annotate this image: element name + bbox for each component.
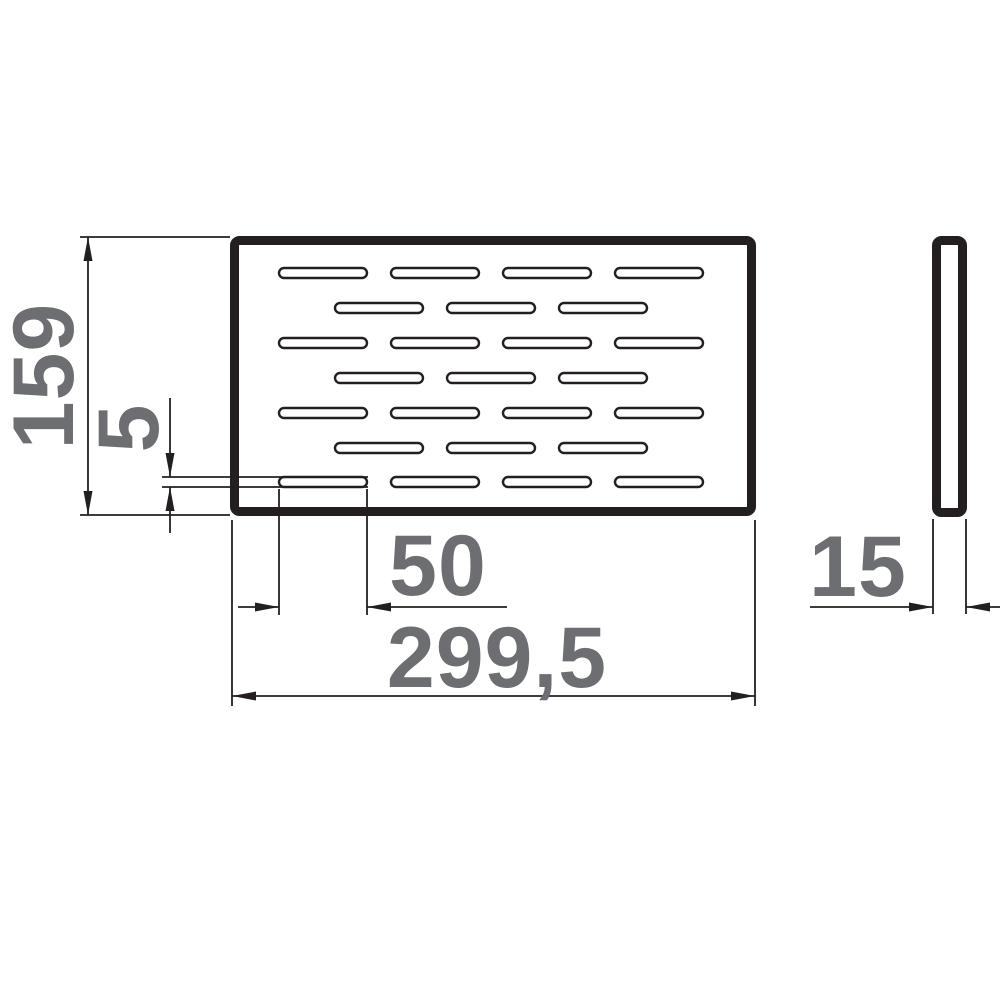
arrow-up-icon bbox=[166, 487, 175, 511]
vent-slot bbox=[447, 443, 535, 453]
dim-label-slot-length: 50 bbox=[389, 523, 487, 609]
technical-drawing: 159 5 50 299,5 15 bbox=[0, 0, 1000, 1000]
vent-slot bbox=[559, 303, 647, 313]
vent-slot bbox=[391, 477, 479, 487]
arrow-left-icon bbox=[966, 603, 990, 612]
dim-159-lines bbox=[80, 237, 230, 515]
vent-slot bbox=[335, 373, 423, 383]
vent-slot bbox=[559, 373, 647, 383]
vent-slot bbox=[447, 303, 535, 313]
vent-slot bbox=[391, 338, 479, 348]
vent-slot bbox=[503, 408, 591, 418]
vent-slot bbox=[279, 338, 367, 348]
vent-slot bbox=[391, 408, 479, 418]
arrow-down-icon bbox=[84, 491, 93, 515]
vent-slot bbox=[391, 268, 479, 278]
vent-slot bbox=[447, 373, 535, 383]
dim-label-slot-height: 5 bbox=[86, 404, 172, 453]
drawing-canvas bbox=[0, 0, 1000, 1000]
vent-slot bbox=[279, 477, 367, 487]
arrow-left-icon bbox=[232, 692, 256, 701]
vent-slot bbox=[335, 443, 423, 453]
vent-slot bbox=[279, 268, 367, 278]
arrow-up-icon bbox=[84, 237, 93, 261]
arrow-right-icon bbox=[909, 603, 933, 612]
vent-slot bbox=[279, 408, 367, 418]
dim-label-plate-thickness: 15 bbox=[809, 524, 907, 610]
vent-slot bbox=[615, 477, 703, 487]
vent-slot bbox=[615, 408, 703, 418]
arrow-right-icon bbox=[255, 603, 279, 612]
vent-slot bbox=[615, 338, 703, 348]
vent-slot bbox=[503, 338, 591, 348]
arrow-right-icon bbox=[731, 692, 755, 701]
vent-slot bbox=[503, 268, 591, 278]
dim-label-plate-height: 159 bbox=[1, 303, 87, 450]
vent-slot bbox=[335, 303, 423, 313]
arrow-down-icon bbox=[166, 453, 175, 477]
side-view-outline bbox=[937, 241, 963, 513]
vent-slot bbox=[615, 268, 703, 278]
vent-slot bbox=[503, 477, 591, 487]
vent-slot bbox=[559, 443, 647, 453]
dim-label-plate-width: 299,5 bbox=[387, 615, 607, 701]
